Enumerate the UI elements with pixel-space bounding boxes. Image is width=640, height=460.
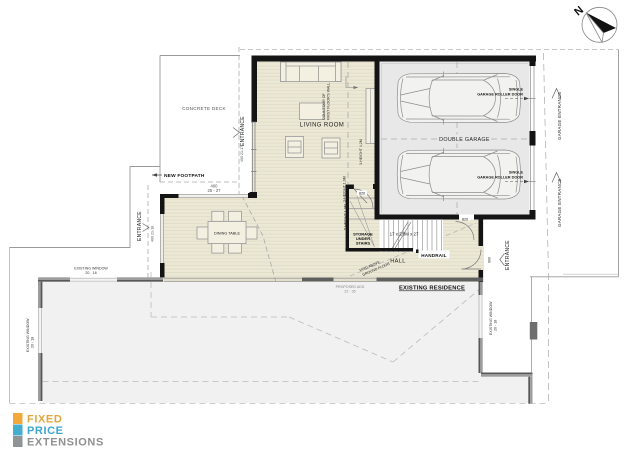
svg-text:900: 900 bbox=[488, 257, 492, 263]
svg-text:LIVING ROOM: LIVING ROOM bbox=[300, 123, 344, 129]
svg-text:25 - 27: 25 - 27 bbox=[207, 188, 221, 193]
svg-text:GARAGE ROLLER DOOR: GARAGE ROLLER DOOR bbox=[477, 93, 523, 97]
svg-text:20 - 18: 20 - 18 bbox=[494, 320, 498, 331]
svg-text:EXISTING WINDOW: EXISTING WINDOW bbox=[489, 301, 493, 335]
svg-text:22 - 35: 22 - 35 bbox=[344, 290, 355, 294]
svg-text:820: 820 bbox=[462, 217, 468, 221]
svg-text:PRICE: PRICE bbox=[27, 425, 64, 437]
svg-text:400 21-17: 400 21-17 bbox=[240, 146, 244, 162]
svg-text:COUNTOUR OF: COUNTOUR OF bbox=[322, 93, 326, 120]
svg-text:DINING TABLE: DINING TABLE bbox=[214, 232, 240, 236]
svg-text:CONCRETE DECK: CONCRETE DECK bbox=[182, 106, 226, 111]
svg-text:20 - 18: 20 - 18 bbox=[85, 271, 96, 275]
svg-text:EXISTING RESIDENCE: EXISTING RESIDENCE bbox=[399, 286, 465, 292]
svg-text:3-HEIGHT 4,2M: 3-HEIGHT 4,2M bbox=[359, 139, 363, 165]
svg-text:EXTENSIONS: EXTENSIONS bbox=[27, 437, 104, 449]
svg-text:ENTRANCE: ENTRANCE bbox=[137, 211, 143, 241]
svg-text:DOUBLE GARAGE: DOUBLE GARAGE bbox=[439, 137, 490, 143]
svg-text:NEW FOOTPATH: NEW FOOTPATH bbox=[164, 173, 205, 179]
svg-text:SINGLE: SINGLE bbox=[509, 88, 524, 92]
svg-text:GARAGE ENTRANCE: GARAGE ENTRANCE bbox=[557, 178, 562, 227]
svg-text:HANDRAIL: HANDRAIL bbox=[421, 253, 447, 258]
svg-text:SINGLE: SINGLE bbox=[509, 171, 524, 175]
svg-text:GARAGE ENTRANCE: GARAGE ENTRANCE bbox=[557, 91, 562, 140]
svg-text:EXISTING WINDOW: EXISTING WINDOW bbox=[26, 318, 30, 352]
svg-text:FIRST FLOOR'S WALL: FIRST FLOOR'S WALL bbox=[327, 83, 331, 120]
svg-text:GARAGE ROLLER DOOR: GARAGE ROLLER DOOR bbox=[477, 176, 523, 180]
svg-text:ENTRANCE: ENTRANCE bbox=[240, 116, 246, 146]
svg-text:820: 820 bbox=[359, 192, 365, 196]
svg-text:ENTRANCE: ENTRANCE bbox=[505, 240, 511, 270]
svg-text:FIXED: FIXED bbox=[27, 414, 62, 426]
svg-text:400 21-18: 400 21-18 bbox=[151, 226, 155, 242]
svg-text:HALL: HALL bbox=[390, 259, 406, 265]
svg-text:PROPOSED ADD: PROPOSED ADD bbox=[336, 285, 365, 289]
svg-text:20 - 18: 20 - 18 bbox=[31, 337, 35, 348]
svg-text:17 x 2/3M x 27: 17 x 2/3M x 27 bbox=[390, 232, 419, 237]
svg-text:STAIRS: STAIRS bbox=[356, 241, 371, 246]
